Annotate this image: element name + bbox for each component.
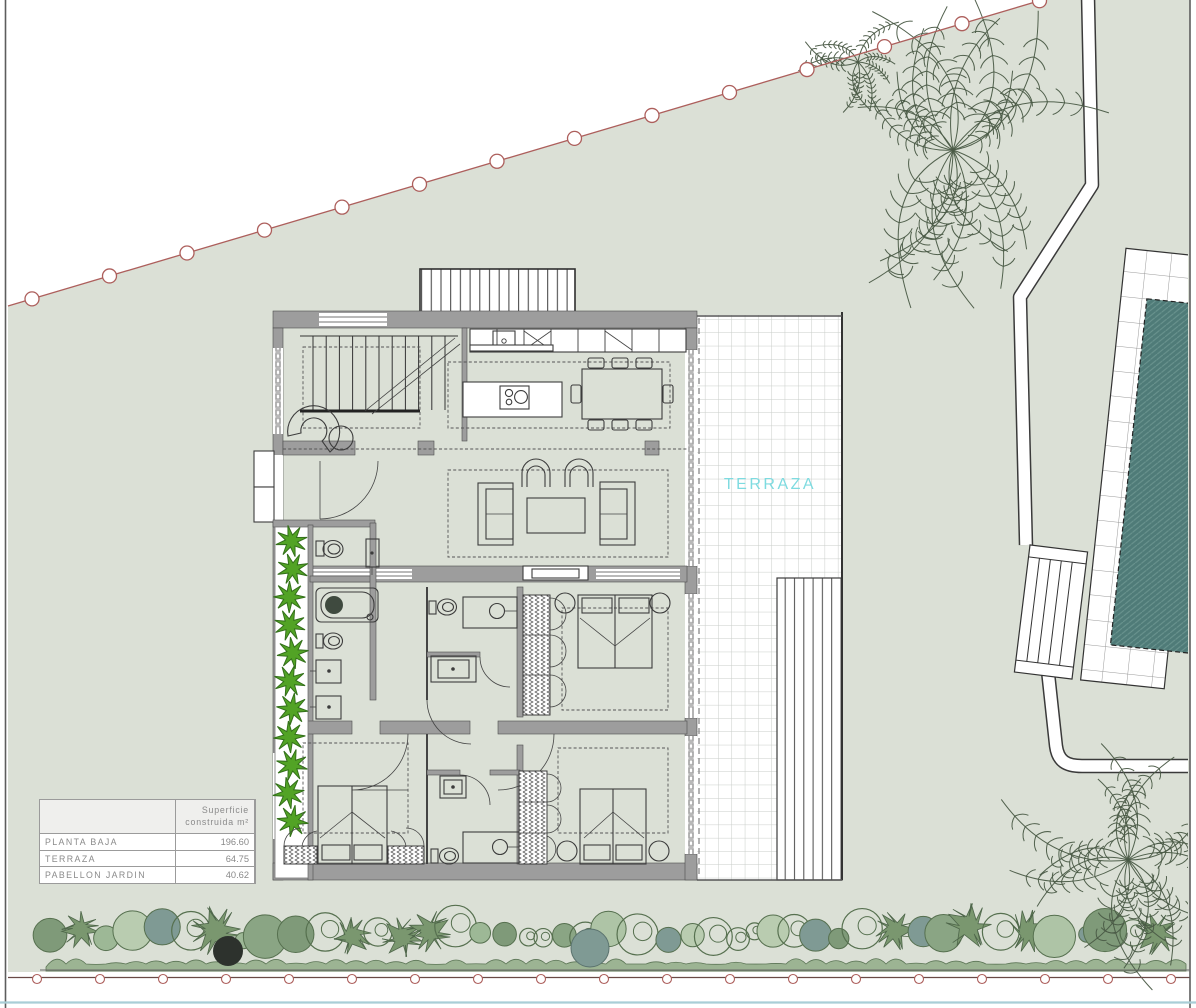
terrace-label: TERRAZA [724, 476, 816, 493]
table-row-label: PLANTA BAJA [40, 834, 175, 850]
table-row-value: 40.62 [176, 867, 254, 883]
terrace: TERRAZA [697, 312, 842, 880]
tv-console [523, 566, 588, 580]
table-row-value: 196.60 [176, 834, 254, 850]
table-row-label: PABELLON JARDIN [40, 867, 175, 883]
table-row-label: TERRAZA [40, 851, 175, 867]
boundary-line-bottom [8, 975, 1190, 984]
entrance-steps [254, 451, 274, 487]
terrace-wood-deck [777, 578, 842, 880]
top-wall-window [319, 313, 387, 326]
areas-table: Superficie construida m² PLANTA BAJA 196… [39, 799, 256, 884]
areas-table-header: Superficie construida m² [176, 800, 254, 833]
pergola-canopy [420, 269, 575, 313]
site-plan-canvas: TERRAZA [0, 0, 1196, 1008]
kitchen-island [463, 382, 562, 417]
areas-table-header-blank [40, 800, 175, 833]
table-row-value: 64.75 [176, 851, 254, 867]
